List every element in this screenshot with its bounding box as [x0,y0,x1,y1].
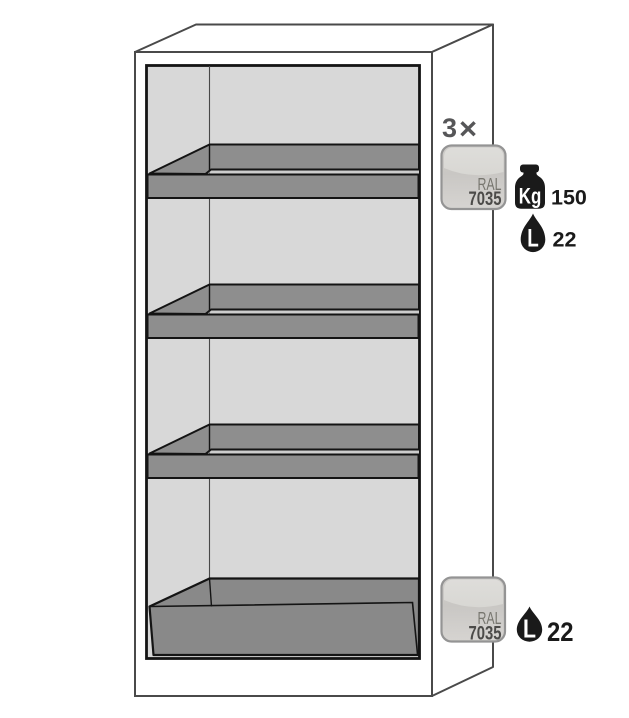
svg-text:150: 150 [551,186,587,210]
svg-text:22: 22 [553,228,577,252]
svg-text:22: 22 [547,617,574,647]
svg-text:7035: 7035 [469,188,502,210]
svg-text:Kg: Kg [519,184,542,209]
svg-text:L: L [527,225,539,253]
svg-text:×: × [459,111,477,146]
svg-text:7035: 7035 [469,623,502,645]
svg-text:3: 3 [442,113,457,143]
svg-text:L: L [523,614,536,644]
